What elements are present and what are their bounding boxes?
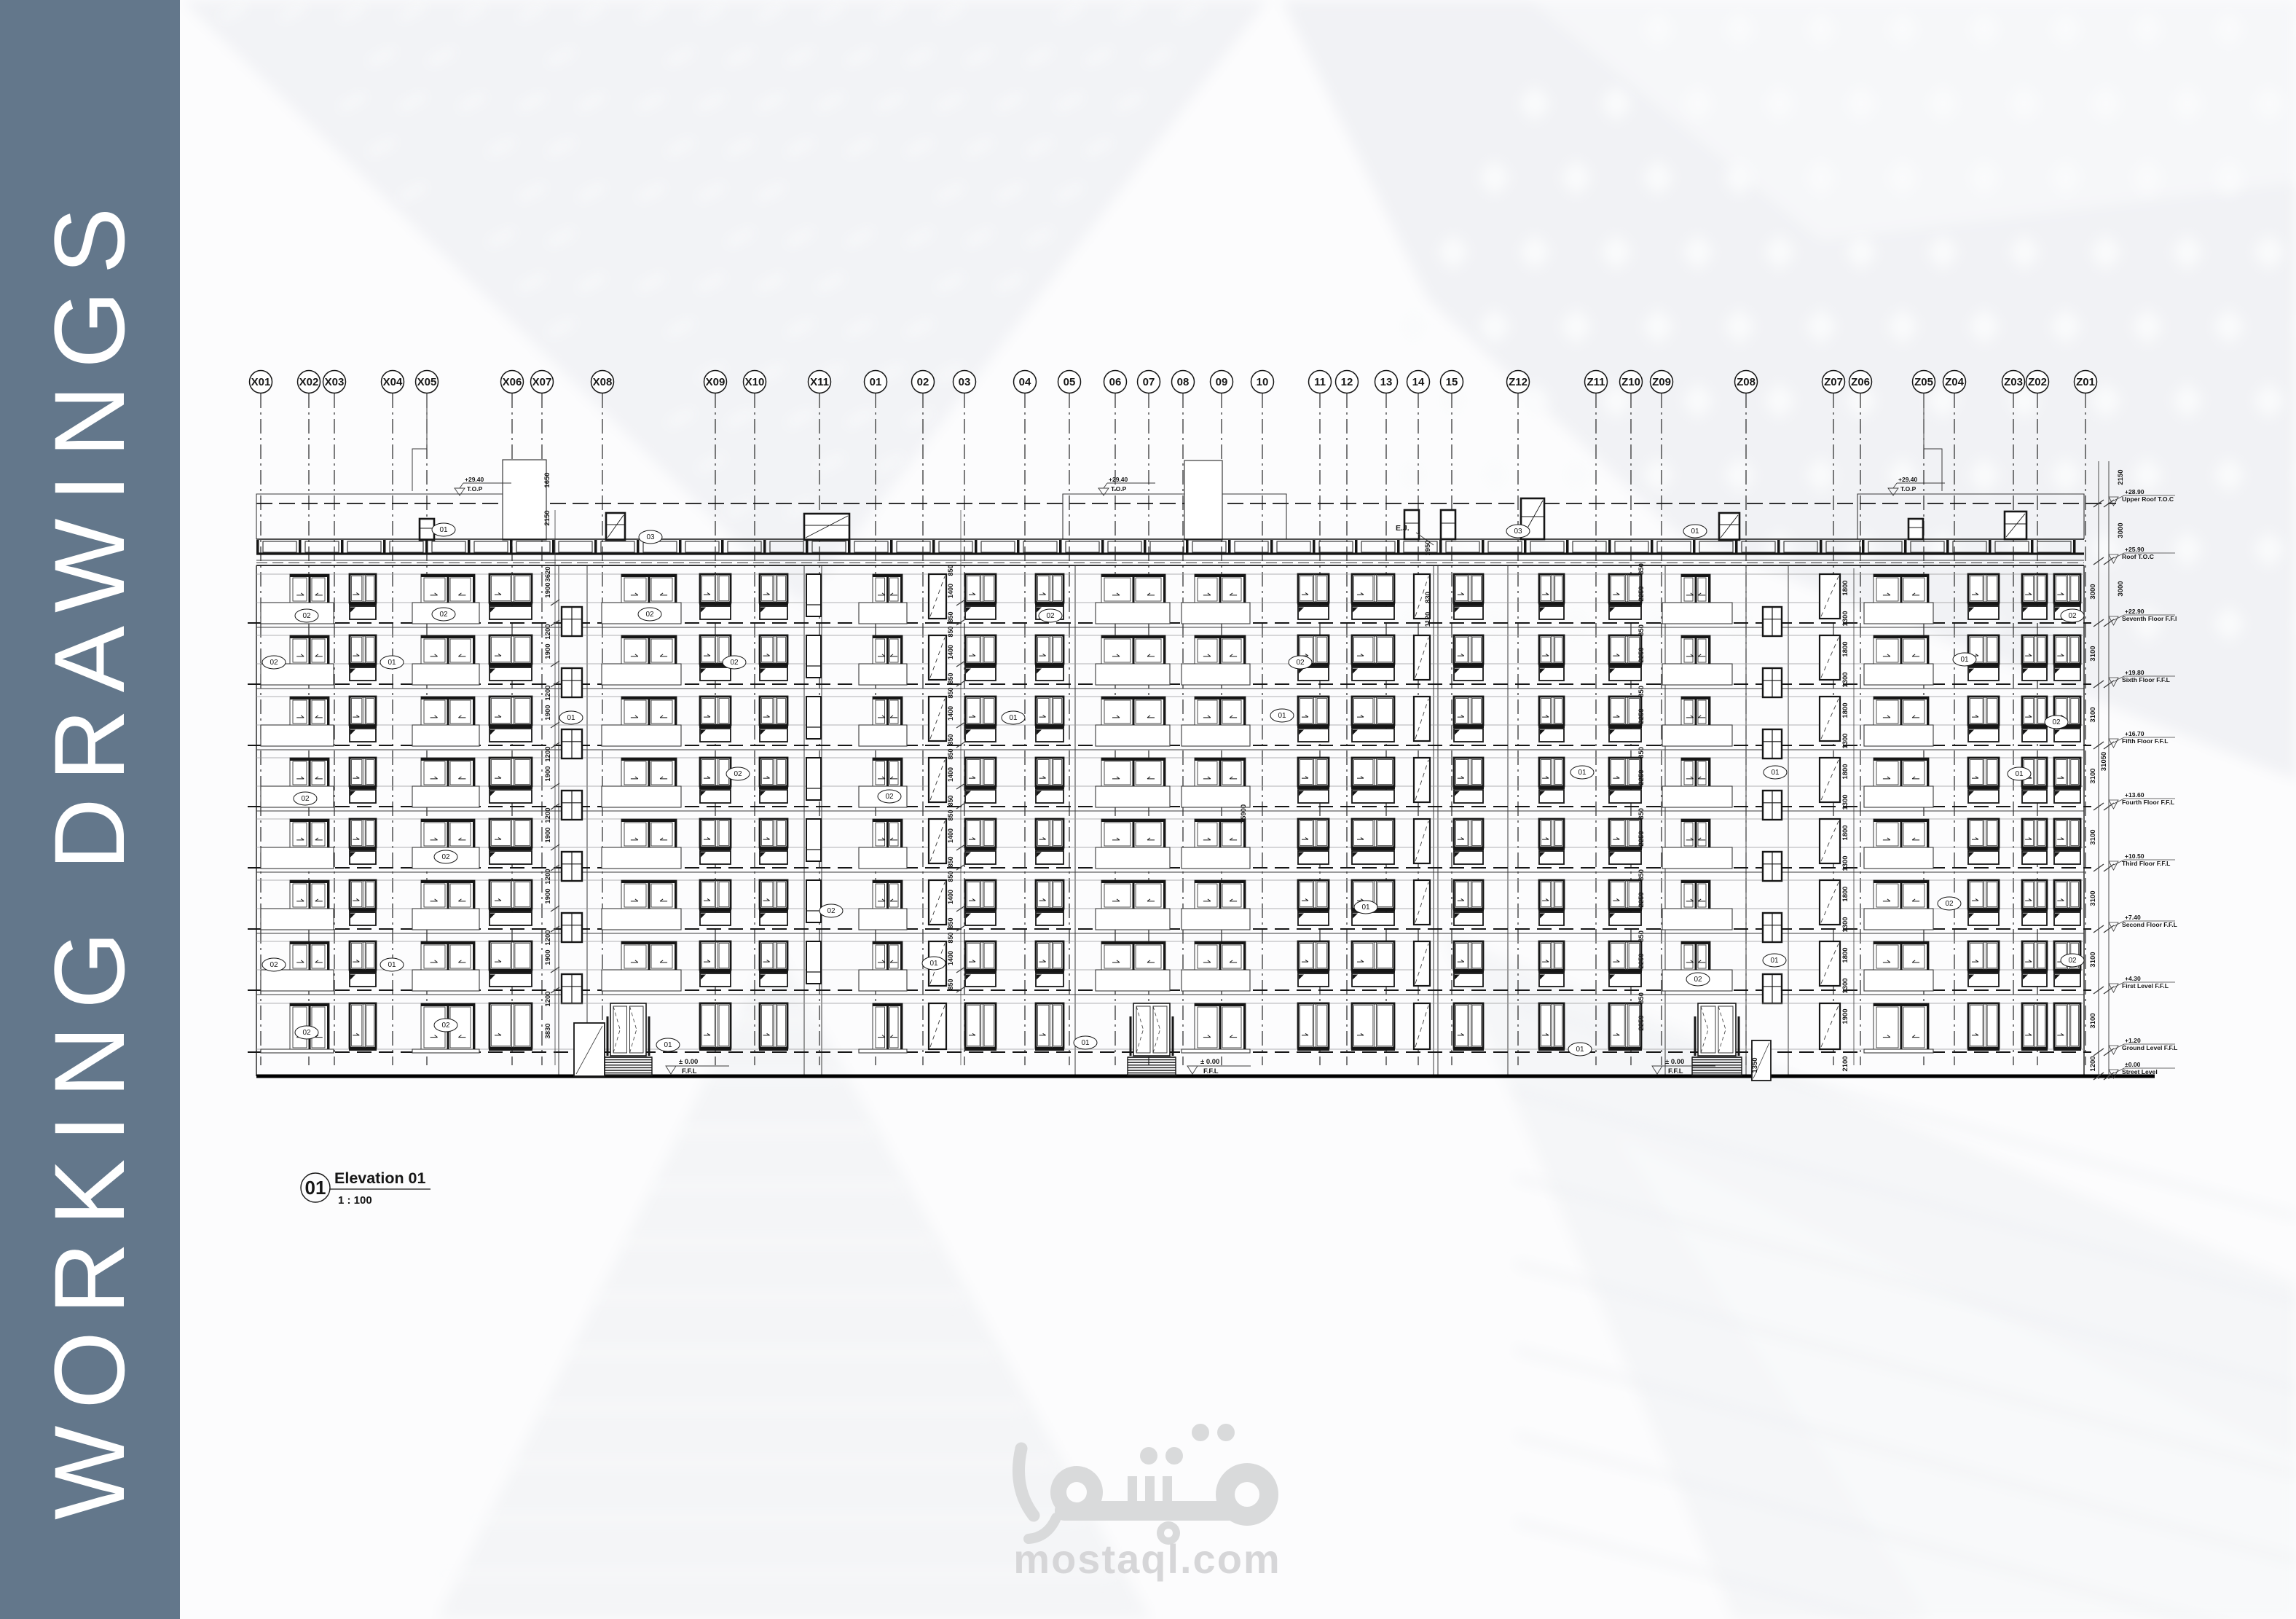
svg-text:+22.90: +22.90 [2125, 608, 2144, 615]
svg-text:31050: 31050 [2100, 752, 2108, 771]
svg-text:02: 02 [827, 907, 836, 915]
svg-text:850: 850 [947, 687, 954, 698]
svg-text:F.F.L: F.F.L [1668, 1067, 1683, 1075]
svg-text:02: 02 [270, 961, 278, 969]
svg-text:03: 03 [646, 533, 655, 541]
svg-text:01: 01 [1960, 656, 1969, 664]
svg-text:X04: X04 [383, 376, 403, 388]
svg-text:2250: 2250 [1638, 708, 1646, 724]
svg-text:Z03: Z03 [2004, 376, 2023, 388]
svg-text:Z06: Z06 [1851, 376, 1870, 388]
svg-text:02: 02 [2068, 612, 2077, 620]
svg-text:02: 02 [2052, 718, 2061, 726]
svg-text:01: 01 [1576, 1046, 1584, 1054]
svg-text:01: 01 [1771, 769, 1780, 777]
svg-text:02: 02 [734, 770, 742, 778]
svg-text:01: 01 [1578, 769, 1587, 777]
svg-text:±0.00: ±0.00 [2125, 1061, 2141, 1068]
svg-text:1200: 1200 [544, 624, 552, 639]
svg-text:Seventh Floor F.F.l: Seventh Floor F.F.l [2122, 615, 2177, 622]
svg-text:1200: 1200 [544, 869, 552, 884]
svg-text:850: 850 [1638, 808, 1646, 820]
svg-text:2150: 2150 [543, 510, 551, 525]
svg-text:02: 02 [1046, 612, 1055, 620]
svg-text:1350: 1350 [1751, 1057, 1759, 1073]
svg-text:1200: 1200 [544, 685, 552, 700]
svg-text:850: 850 [947, 871, 954, 882]
svg-text:1800: 1800 [1841, 764, 1849, 779]
svg-text:3100: 3100 [2089, 952, 2097, 967]
svg-text:+25.90: +25.90 [2125, 546, 2144, 553]
svg-text:1400: 1400 [947, 645, 954, 659]
svg-text:Sixth Floor F.F.L: Sixth Floor F.F.L [2122, 676, 2170, 683]
svg-text:+13.60: +13.60 [2125, 791, 2144, 799]
svg-text:04: 04 [1019, 376, 1031, 388]
svg-text:01: 01 [2015, 770, 2024, 778]
svg-text:X09: X09 [706, 376, 726, 388]
svg-text:1200: 1200 [544, 991, 552, 1006]
svg-text:Z02: Z02 [2028, 376, 2047, 388]
svg-text:3000: 3000 [2117, 522, 2125, 538]
svg-text:1900: 1900 [544, 949, 552, 965]
svg-text:15: 15 [1446, 376, 1458, 388]
svg-text:02: 02 [730, 659, 739, 667]
svg-text:12: 12 [1341, 376, 1353, 388]
svg-text:1200: 1200 [2089, 1056, 2097, 1071]
svg-text:02: 02 [645, 611, 654, 619]
svg-text:2250: 2250 [1638, 647, 1646, 662]
svg-text:F.F.L: F.F.L [1203, 1067, 1219, 1075]
svg-text:850: 850 [947, 748, 954, 759]
svg-text:+16.70: +16.70 [2125, 730, 2144, 737]
svg-text:X06: X06 [503, 376, 522, 388]
svg-text:F.F.L: F.F.L [682, 1067, 697, 1075]
svg-text:Elevation 01: Elevation 01 [334, 1169, 426, 1187]
svg-text:X08: X08 [593, 376, 613, 388]
svg-text:1300: 1300 [1841, 978, 1849, 993]
svg-text:3000: 3000 [2089, 584, 2097, 599]
svg-text:1900: 1900 [1841, 1008, 1849, 1024]
svg-text:850: 850 [1638, 747, 1646, 758]
svg-text:01: 01 [439, 526, 448, 534]
svg-text:1400: 1400 [947, 828, 954, 843]
svg-text:850: 850 [947, 856, 954, 867]
svg-text:1300: 1300 [1841, 917, 1849, 932]
svg-text:07: 07 [1143, 376, 1155, 388]
svg-text:+29.40: +29.40 [1109, 476, 1128, 483]
svg-text:Z05: Z05 [1914, 376, 1933, 388]
svg-text:3100: 3100 [2089, 646, 2097, 661]
svg-text:850: 850 [947, 565, 954, 576]
svg-text:Street Level: Street Level [2122, 1068, 2158, 1075]
svg-text:X10: X10 [745, 376, 765, 388]
svg-text:1300: 1300 [1841, 794, 1849, 809]
svg-text:1200: 1200 [544, 930, 552, 945]
svg-text:+10.50: +10.50 [2125, 852, 2144, 860]
svg-text:Second Floor F.F.L: Second Floor F.F.L [2122, 921, 2177, 928]
svg-text:WORKING DRAWINGS: WORKING DRAWINGS [34, 191, 146, 1520]
svg-text:1900: 1900 [544, 582, 552, 597]
svg-text:10: 10 [1257, 376, 1269, 388]
svg-text:Z01: Z01 [2076, 376, 2095, 388]
svg-text:Fifth Floor F.F.L: Fifth Floor F.F.L [2122, 737, 2168, 745]
svg-text:1800: 1800 [1841, 886, 1849, 901]
svg-text:850: 850 [1638, 624, 1646, 636]
svg-text:3100: 3100 [2089, 829, 2097, 844]
svg-text:Z07: Z07 [1824, 376, 1843, 388]
svg-text:X11: X11 [810, 376, 829, 388]
svg-text:850: 850 [947, 809, 954, 820]
svg-text:02: 02 [1694, 976, 1702, 984]
svg-text:850: 850 [1638, 686, 1646, 697]
svg-text:01: 01 [1770, 957, 1779, 965]
svg-text:02: 02 [439, 611, 448, 619]
svg-text:T.O.P: T.O.P [467, 485, 483, 493]
svg-text:Upper Roof T.O.C: Upper Roof T.O.C [2122, 495, 2174, 503]
svg-text:02: 02 [301, 795, 310, 803]
svg-text:02: 02 [1945, 900, 1954, 908]
svg-text:First Level F.F.L: First Level F.F.L [2122, 982, 2169, 989]
svg-text:1400: 1400 [947, 890, 954, 904]
svg-text:2250: 2250 [1638, 831, 1646, 846]
svg-text:850: 850 [947, 611, 954, 622]
svg-text:Roof T.O.C: Roof T.O.C [2122, 553, 2154, 560]
svg-text:01: 01 [388, 961, 396, 969]
svg-text:01: 01 [1691, 528, 1699, 536]
svg-text:T.O.P: T.O.P [1111, 485, 1127, 493]
svg-text:01: 01 [870, 376, 882, 388]
svg-text:01: 01 [1361, 903, 1370, 912]
svg-text:Z08: Z08 [1737, 376, 1756, 388]
svg-text:850: 850 [1638, 869, 1646, 881]
svg-text:850: 850 [947, 673, 954, 683]
svg-text:01: 01 [305, 1177, 326, 1199]
svg-text:02: 02 [2068, 957, 2077, 965]
svg-text:850: 850 [1638, 992, 1646, 1004]
svg-text:3100: 3100 [2089, 890, 2097, 906]
svg-text:X01: X01 [251, 376, 271, 388]
svg-text:01: 01 [388, 659, 396, 667]
svg-text:+28.90: +28.90 [2125, 488, 2144, 495]
svg-text:02: 02 [302, 612, 311, 620]
svg-text:02: 02 [302, 1029, 311, 1037]
svg-text:1400: 1400 [947, 767, 954, 782]
svg-text:3100: 3100 [2089, 1013, 2097, 1028]
svg-text:2250: 2250 [1638, 1015, 1646, 1030]
svg-text:1900: 1900 [544, 705, 552, 720]
svg-text:850: 850 [947, 917, 954, 928]
svg-text:1300: 1300 [1841, 672, 1849, 687]
svg-text:3000: 3000 [2117, 581, 2125, 596]
svg-text:01: 01 [1081, 1039, 1090, 1047]
svg-text:01: 01 [567, 714, 575, 722]
svg-text:1900: 1900 [544, 643, 552, 659]
svg-text:02: 02 [270, 659, 278, 667]
svg-text:25900: 25900 [1240, 804, 1248, 823]
svg-text:+19.80: +19.80 [2125, 669, 2144, 676]
svg-text:3100: 3100 [2089, 768, 2097, 783]
svg-text:1800: 1800 [1841, 825, 1849, 840]
svg-text:+29.40: +29.40 [1898, 476, 1918, 483]
svg-text:3620: 3620 [544, 566, 552, 581]
svg-text:1800: 1800 [1841, 702, 1849, 718]
svg-text:08: 08 [1177, 376, 1190, 388]
svg-text:1200: 1200 [544, 746, 552, 761]
svg-text:Z12: Z12 [1509, 376, 1528, 388]
svg-text:1900: 1900 [544, 766, 552, 781]
svg-text:1800: 1800 [1841, 580, 1849, 595]
svg-text:X02: X02 [299, 376, 319, 388]
svg-text:Z04: Z04 [1945, 376, 1965, 388]
svg-text:850: 850 [1638, 563, 1646, 575]
svg-text:+1.20: +1.20 [2125, 1037, 2141, 1044]
svg-text:3100: 3100 [2089, 707, 2097, 722]
svg-text:830: 830 [1424, 592, 1432, 603]
svg-text:03: 03 [1514, 528, 1522, 536]
svg-text:03: 03 [959, 376, 971, 388]
svg-text:02: 02 [441, 1022, 450, 1030]
svg-text:14: 14 [1412, 376, 1425, 388]
svg-text:1200: 1200 [544, 807, 552, 823]
svg-text:Z09: Z09 [1652, 376, 1671, 388]
svg-text:850: 850 [947, 979, 954, 989]
svg-text:1300: 1300 [1841, 733, 1849, 748]
svg-text:1800: 1800 [1841, 641, 1849, 656]
svg-text:02: 02 [917, 376, 929, 388]
svg-text:1400: 1400 [947, 584, 954, 598]
svg-text:+7.40: +7.40 [2125, 914, 2141, 921]
svg-text:1400: 1400 [947, 951, 954, 965]
svg-text:850: 850 [947, 626, 954, 637]
svg-text:E.J.: E.J. [1396, 524, 1410, 533]
svg-text:Third Floor F.F.L: Third Floor F.F.L [2122, 860, 2170, 867]
svg-text:13: 13 [1380, 376, 1393, 388]
svg-text:11: 11 [1314, 376, 1326, 388]
svg-text:3830: 3830 [544, 1023, 552, 1038]
svg-text:1950: 1950 [1424, 540, 1432, 555]
svg-text:+29.40: +29.40 [465, 476, 484, 483]
svg-text:X07: X07 [532, 376, 552, 388]
svg-text:1900: 1900 [544, 827, 552, 842]
svg-text:850: 850 [947, 932, 954, 943]
svg-text:850: 850 [947, 795, 954, 806]
svg-text:09: 09 [1216, 376, 1228, 388]
svg-text:X05: X05 [417, 376, 437, 388]
svg-text:850: 850 [947, 734, 954, 745]
svg-text:01: 01 [929, 960, 938, 968]
svg-text:1300: 1300 [1841, 855, 1849, 871]
svg-text:2250: 2250 [1638, 769, 1646, 785]
svg-text:02: 02 [1296, 659, 1305, 667]
svg-text:Fourth Floor F.F.L: Fourth Floor F.F.L [2122, 799, 2174, 806]
svg-text:02: 02 [885, 793, 894, 801]
svg-text:Z10: Z10 [1621, 376, 1640, 388]
svg-text:2150: 2150 [2117, 469, 2125, 485]
svg-text:1300: 1300 [1841, 611, 1849, 626]
svg-text:05: 05 [1064, 376, 1076, 388]
svg-text:01: 01 [1278, 712, 1286, 720]
svg-text:X03: X03 [325, 376, 345, 388]
svg-text:± 0.00: ± 0.00 [679, 1058, 698, 1066]
svg-text:1800: 1800 [1841, 947, 1849, 963]
svg-text:Z11: Z11 [1587, 376, 1605, 388]
svg-text:1400: 1400 [947, 706, 954, 721]
svg-text:2250: 2250 [1638, 892, 1646, 907]
svg-text:± 0.00: ± 0.00 [1665, 1058, 1684, 1066]
svg-text:mostaql.com: mostaql.com [1013, 1536, 1281, 1582]
svg-text:2100: 2100 [1841, 1056, 1849, 1071]
svg-text:T.O.P: T.O.P [1900, 485, 1916, 493]
svg-text:+4.30: +4.30 [2125, 975, 2141, 982]
svg-text:2250: 2250 [1638, 953, 1646, 968]
svg-text:1 : 100: 1 : 100 [338, 1194, 372, 1207]
svg-text:± 0.00: ± 0.00 [1200, 1058, 1219, 1066]
svg-text:02: 02 [441, 853, 450, 861]
svg-text:06: 06 [1109, 376, 1122, 388]
svg-text:01: 01 [664, 1041, 672, 1049]
svg-text:1120: 1120 [1424, 612, 1432, 627]
svg-text:2250: 2250 [1638, 586, 1646, 601]
svg-text:850: 850 [1638, 930, 1646, 942]
svg-text:01: 01 [1009, 714, 1018, 722]
svg-text:1650: 1650 [543, 472, 551, 487]
svg-text:1900: 1900 [544, 888, 552, 903]
svg-text:Ground Level F.F.L: Ground Level F.F.L [2122, 1044, 2177, 1051]
